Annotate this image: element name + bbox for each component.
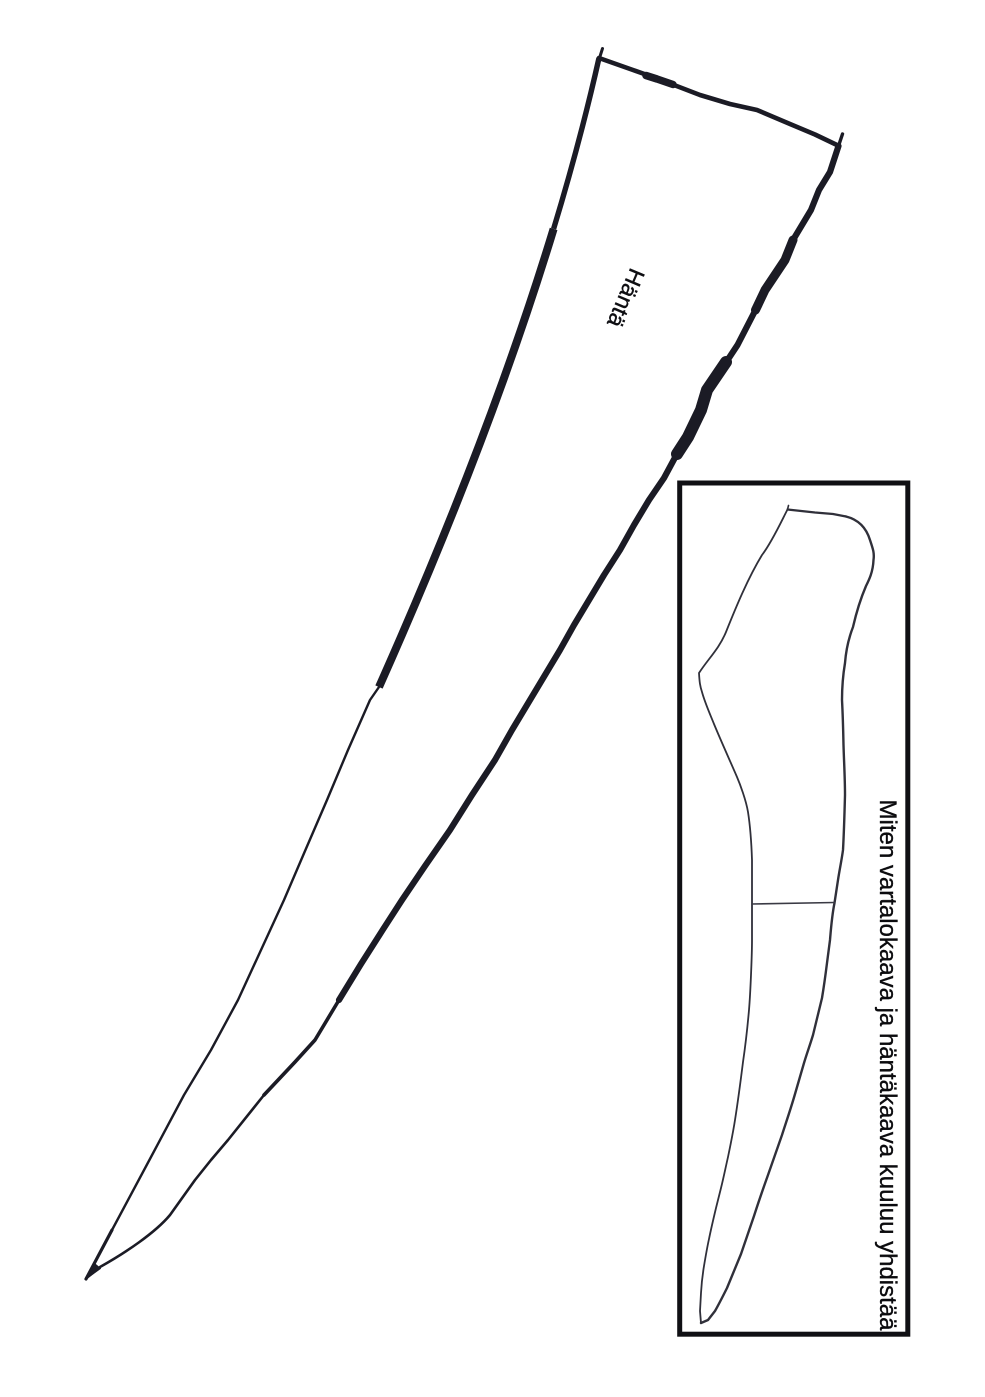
- svg-text:Miten vartalokaava ja häntäkaa: Miten vartalokaava ja häntäkaava kuuluu …: [874, 800, 901, 1332]
